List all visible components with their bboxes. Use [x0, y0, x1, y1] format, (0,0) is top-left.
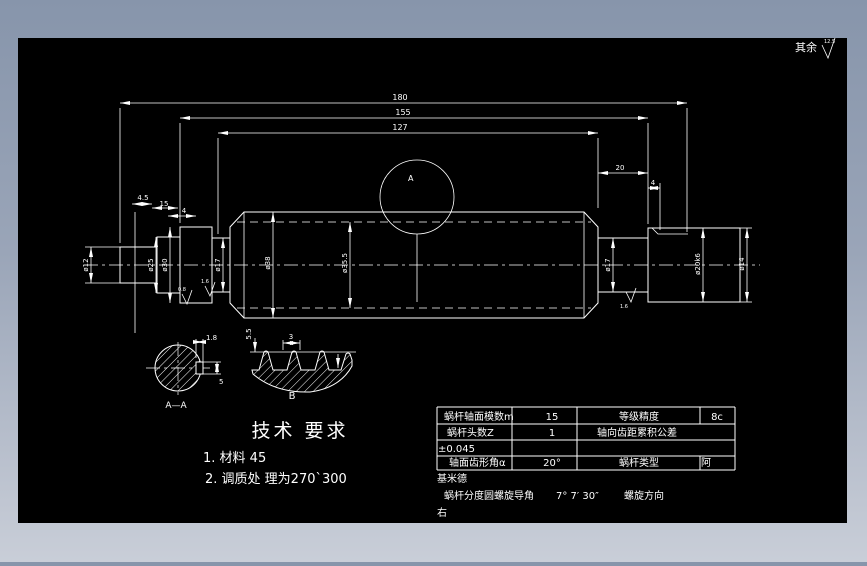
tech-item-2: 2. 调质处 理为270`300 — [205, 472, 347, 487]
table-cell: 蜗杆头数Z — [447, 426, 494, 439]
dim-dia35p5: ø35.5 — [341, 253, 349, 273]
dim-20: 20 — [616, 164, 625, 172]
dim-15: 15 — [160, 200, 169, 208]
table-cell: 15 — [546, 412, 559, 423]
dim-180: 180 — [392, 93, 407, 102]
dim-pitch: 3 — [289, 333, 293, 341]
drawing-canvas[interactable] — [18, 38, 847, 523]
cad-viewport: 其余 12.5 A 180 155 127 — [0, 0, 867, 566]
dim-dia12: ø12 — [82, 258, 90, 271]
table-cell: 蜗杆轴面模数m — [444, 410, 514, 423]
dim-dia17-left: ø17 — [214, 258, 222, 271]
table-wrap-text: 基米德 — [437, 472, 467, 485]
detail-b-label: B — [289, 391, 296, 402]
table-cell: 阿 — [701, 457, 711, 469]
dim-dia25: ø25 — [147, 258, 155, 271]
detail-circle-label: A — [408, 174, 414, 183]
table-cell: ±0.045 — [438, 444, 475, 455]
dim-127: 127 — [392, 123, 407, 132]
dim-tooth-height: 5.5 — [245, 328, 253, 339]
dim-key-width: 5 — [219, 378, 223, 386]
table-cell: 蜗杆类型 — [619, 456, 659, 469]
roughness-note-value: 12.5 — [824, 39, 835, 45]
dim-4-left: 4 — [182, 207, 187, 215]
dim-dia17-right: ø17 — [604, 258, 612, 271]
keyway-notch — [196, 362, 203, 374]
helix-direction-label: 螺旋方向 — [624, 489, 664, 502]
dim-dia30: ø30 — [161, 258, 169, 271]
dim-4p5: 4.5 — [137, 194, 148, 202]
table-cell: 轴面齿形角α — [449, 456, 506, 469]
lead-angle-label: 蜗杆分度圆螺旋导角 — [444, 489, 534, 502]
tech-title: 技术 要求 — [251, 420, 348, 442]
roughness-value-2: 1.6 — [201, 279, 209, 285]
dim-dia14: ø14 — [738, 257, 746, 271]
roughness-value-1: 0.8 — [178, 287, 186, 293]
table-cell: 1 — [549, 428, 555, 439]
section-aa-label: A—A — [165, 401, 187, 411]
lead-angle-value: 7° 7′ 30″ — [556, 491, 599, 502]
dim-dia20k6: ø20k6 — [694, 253, 702, 275]
table-cell: 8c — [711, 412, 723, 423]
dim-4-right: 4 — [651, 179, 656, 187]
table-cell: 20° — [543, 458, 561, 469]
section-circle — [155, 345, 201, 391]
helix-direction-value: 右 — [437, 506, 447, 519]
roughness-note-label: 其余 — [795, 40, 817, 54]
roughness-value-3: 1.6 — [620, 304, 628, 310]
table-cell: 轴向齿距累积公差 — [597, 426, 677, 439]
dim-key-depth: 1.8 — [206, 334, 217, 342]
dim-dia38: ø38 — [264, 256, 272, 269]
dim-155: 155 — [395, 108, 410, 117]
table-cell: 等级精度 — [619, 410, 659, 423]
tech-item-1: 1. 材料 45 — [203, 451, 266, 466]
